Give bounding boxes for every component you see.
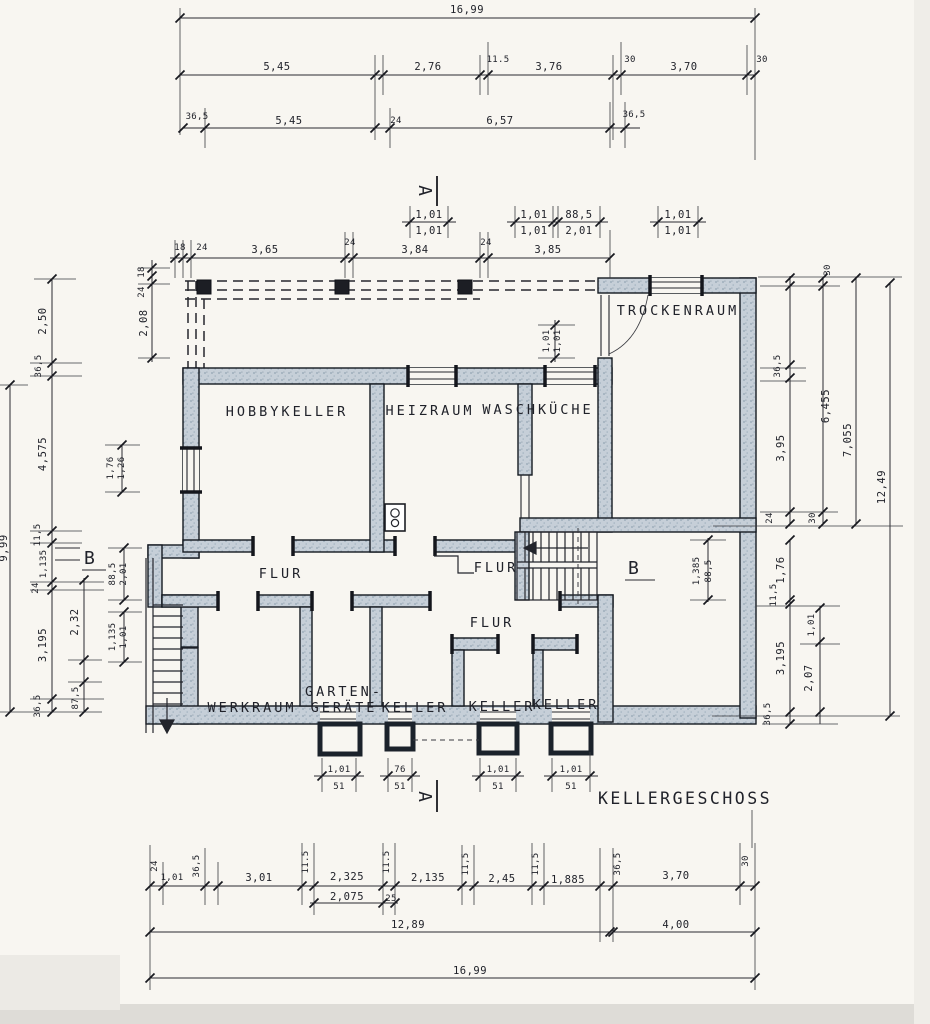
dim: 5,45 bbox=[263, 61, 290, 73]
dim: 1,01 bbox=[520, 225, 547, 237]
boiler-symbol bbox=[385, 504, 405, 531]
floor-plan-scan: A A B B TROCKENRAUM HOBBYKELLER HEIZRAUM… bbox=[0, 0, 930, 1024]
dim: 1,385 bbox=[692, 557, 702, 586]
dim: 5,45 bbox=[275, 115, 302, 127]
dim: 11.5 bbox=[301, 851, 311, 874]
dim: 1,135 bbox=[108, 623, 118, 652]
room-labels: TROCKENRAUM HOBBYKELLER HEIZRAUM WASCHKÜ… bbox=[207, 303, 739, 716]
dim: 16,99 bbox=[450, 4, 484, 16]
section-a-top: A bbox=[414, 185, 435, 197]
dim: 36,5 bbox=[623, 110, 646, 120]
floor-plan-drawing: A A B B TROCKENRAUM HOBBYKELLER HEIZRAUM… bbox=[0, 0, 930, 1024]
dim: 24 bbox=[480, 238, 491, 248]
dim: 36,5 bbox=[773, 355, 783, 378]
dim: 1,01 bbox=[553, 330, 563, 353]
dim: 87,5 bbox=[71, 687, 81, 710]
dim: 36,5 bbox=[613, 853, 623, 876]
dim: 1,01 bbox=[560, 765, 583, 775]
dim: 1,01 bbox=[119, 626, 129, 649]
dim: 24 bbox=[31, 582, 41, 593]
dim: 1,01 bbox=[487, 765, 510, 775]
dim: 1,76 bbox=[775, 556, 787, 583]
dim: 3,76 bbox=[535, 61, 562, 73]
dim: 3,01 bbox=[245, 872, 272, 884]
dim: 1,01 bbox=[415, 209, 442, 221]
dim: 12,49 bbox=[876, 470, 888, 504]
dim: 11,5 bbox=[461, 853, 471, 876]
dim: 1,01 bbox=[807, 614, 817, 637]
dimension-lines bbox=[0, 8, 903, 990]
room-label-trockenraum: TROCKENRAUM bbox=[617, 303, 739, 319]
terrace-post bbox=[197, 280, 211, 294]
dim: 51 bbox=[333, 782, 344, 792]
dimension-labels-wells: 1,01 51 76 51 1,01 51 1,01 51 bbox=[328, 765, 583, 792]
dim: 51 bbox=[565, 782, 576, 792]
dim: 1,26 bbox=[117, 457, 127, 480]
dim: 2,32 bbox=[69, 608, 81, 635]
dim: 36,5 bbox=[763, 703, 773, 726]
dim: 30 bbox=[756, 55, 767, 65]
dimension-labels-top: 16,99 5,45 2,76 11.5 3,76 30 3,70 30 36,… bbox=[186, 4, 768, 127]
dim: 88,5 bbox=[108, 563, 118, 586]
dim: 30 bbox=[823, 264, 833, 275]
dim: 3,195 bbox=[775, 641, 787, 675]
room-label-waschkueche: WASCHKÜCHE bbox=[482, 400, 593, 418]
dim: 16,99 bbox=[453, 965, 487, 977]
dim: 1,01 bbox=[415, 225, 442, 237]
dim: 1,135 bbox=[39, 550, 49, 579]
dimension-labels-pairs: 1,01 1,01 1,01 1,01 88,5 2,01 1,01 1,01 bbox=[415, 209, 691, 237]
dim: 1,76 bbox=[106, 457, 116, 480]
dim: 2,08 bbox=[138, 309, 150, 336]
room-label-werkraum: WERKRAUM bbox=[207, 700, 296, 716]
windows-and-doors bbox=[180, 275, 702, 724]
room-label-garten-line1: GARTEN- bbox=[305, 684, 383, 700]
dim: 12,89 bbox=[391, 919, 425, 931]
terrace-post bbox=[335, 280, 349, 294]
dimension-ticks bbox=[6, 14, 895, 983]
dim: 36,5 bbox=[33, 695, 43, 718]
dim: 88,5 bbox=[704, 560, 714, 583]
dim: 24 bbox=[390, 116, 401, 126]
plan-title: KELLERGESCHOSS bbox=[598, 789, 772, 808]
dim: 36,5 bbox=[192, 855, 202, 878]
dim: 18 bbox=[137, 266, 147, 277]
room-label-keller-1: KELLER bbox=[382, 700, 449, 716]
dim: 24 bbox=[150, 860, 160, 871]
dim: 2,01 bbox=[119, 563, 129, 586]
room-label-hobbykeller: HOBBYKELLER bbox=[226, 404, 348, 420]
dim: 11,5 bbox=[769, 584, 779, 607]
dim: 24 bbox=[344, 238, 355, 248]
dim: 24 bbox=[765, 512, 775, 523]
dim: 88,5 bbox=[565, 209, 592, 221]
dim: 25 bbox=[385, 894, 396, 904]
dim: 2,07 bbox=[803, 664, 815, 691]
dimension-labels-terrace: 18 24 3,65 24 3,84 24 3,85 18 24 2,08 1,… bbox=[137, 238, 563, 352]
dim: 51 bbox=[394, 782, 405, 792]
room-label-keller-3: KELLER bbox=[533, 697, 600, 713]
dimension-labels-left: 9,99 2,50 36,5 4,575 11,5 1,135 24 3,195… bbox=[0, 307, 129, 717]
dim: 2,50 bbox=[37, 307, 49, 334]
dim: 76 bbox=[394, 765, 405, 775]
dim: 2,76 bbox=[414, 61, 441, 73]
dim: 9,99 bbox=[0, 534, 10, 561]
dim: 11,5 bbox=[531, 853, 541, 876]
section-b-right: B bbox=[628, 558, 640, 579]
room-label-flur-lower: FLUR bbox=[470, 615, 515, 631]
dim: 1,01 bbox=[520, 209, 547, 221]
dim: 24 bbox=[196, 243, 207, 253]
dim: 1,01 bbox=[664, 225, 691, 237]
dim: 11,5 bbox=[33, 524, 43, 547]
section-b-left: B bbox=[84, 548, 96, 569]
walls bbox=[146, 278, 756, 724]
light-wells bbox=[320, 724, 591, 754]
dim: 4,575 bbox=[37, 437, 49, 471]
dim: 1,01 bbox=[161, 873, 184, 883]
dim: 3,95 bbox=[775, 434, 787, 461]
dim: 2,01 bbox=[565, 225, 592, 237]
dim: 36,5 bbox=[186, 112, 209, 122]
dim: 51 bbox=[492, 782, 503, 792]
dim: 6,455 bbox=[820, 389, 832, 423]
dim: 1,01 bbox=[664, 209, 691, 221]
dim: 3,65 bbox=[251, 244, 278, 256]
dimension-labels-bottom: 24 1,01 36,5 3,01 11.5 2,325 11.5 2,135 … bbox=[150, 851, 751, 977]
dim: 11.5 bbox=[487, 55, 510, 65]
dim: 18 bbox=[174, 243, 185, 253]
dim: 3,70 bbox=[662, 870, 689, 882]
terrace-post bbox=[458, 280, 472, 294]
room-label-garten-line2: GERÄTE bbox=[311, 698, 378, 716]
dim: 30 bbox=[624, 55, 635, 65]
dim: 3,195 bbox=[37, 628, 49, 662]
dim: 30 bbox=[808, 512, 818, 523]
dim: 4,00 bbox=[662, 919, 689, 931]
dim: 1,01 bbox=[542, 330, 552, 353]
flur-corner-symbol bbox=[434, 556, 474, 573]
room-label-flur-mid: FLUR bbox=[474, 560, 519, 576]
dim: 2,075 bbox=[330, 891, 364, 903]
dim: 3,84 bbox=[401, 244, 428, 256]
room-label-keller-2: KELLER bbox=[469, 699, 536, 715]
dim: 2,135 bbox=[411, 872, 445, 884]
dim: 2,45 bbox=[488, 873, 515, 885]
dim: 36,5 bbox=[34, 355, 44, 378]
dim: 30 bbox=[741, 855, 751, 866]
room-label-heizraum: HEIZRAUM bbox=[385, 403, 474, 419]
dim: 3,85 bbox=[534, 244, 561, 256]
dim: 2,325 bbox=[330, 871, 364, 883]
room-label-flur-left: FLUR bbox=[259, 566, 304, 582]
dim: 11.5 bbox=[382, 851, 392, 874]
dim: 1,885 bbox=[551, 874, 585, 886]
dim: 6,57 bbox=[486, 115, 513, 127]
dim: 24 bbox=[137, 286, 147, 297]
dim: 1,01 bbox=[328, 765, 351, 775]
section-a-bottom: A bbox=[414, 791, 435, 803]
dim: 7,055 bbox=[842, 423, 854, 457]
dim: 3,70 bbox=[670, 61, 697, 73]
terrace-outline bbox=[185, 280, 598, 368]
